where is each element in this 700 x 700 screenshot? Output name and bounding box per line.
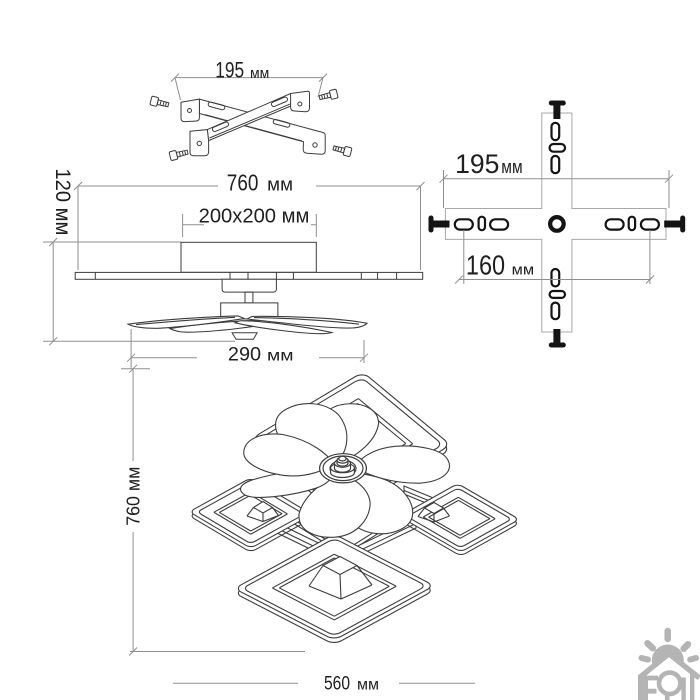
svg-text:160: 160 [466,250,505,281]
svg-text:мм: мм [250,65,269,82]
svg-text:760: 760 [227,170,259,196]
svg-text:мм: мм [267,348,294,365]
svg-text:мм: мм [501,156,522,177]
svg-text:мм: мм [267,175,293,195]
svg-text:120 мм: 120 мм [51,168,76,235]
svg-text:290: 290 [228,345,261,366]
svg-text:мм: мм [357,677,379,694]
svg-text:200x200 мм: 200x200 мм [199,205,310,228]
svg-text:мм: мм [512,262,534,279]
svg-text:560: 560 [324,673,350,695]
svg-text:195: 195 [215,57,244,82]
svg-text:760 мм: 760 мм [124,467,144,526]
svg-text:195: 195 [455,149,499,179]
